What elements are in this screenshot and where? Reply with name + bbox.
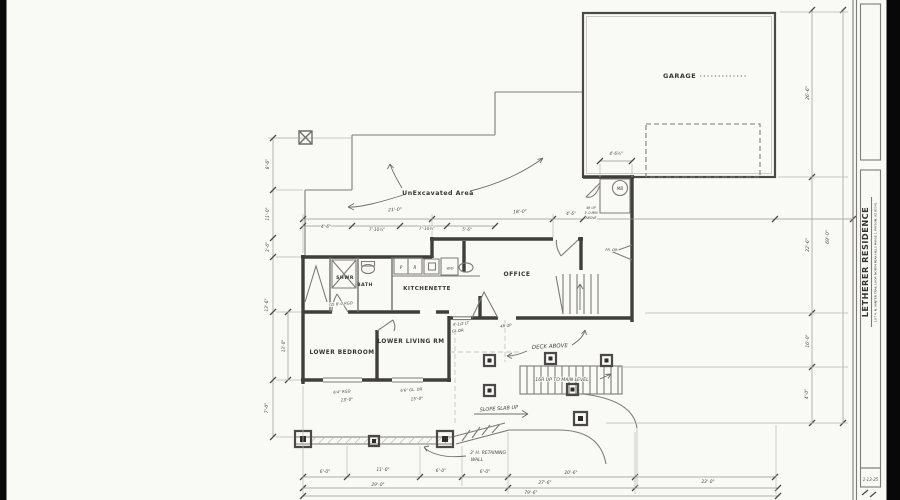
lower-living-label: LOWER LIVING RM xyxy=(377,339,444,345)
dim-top-21: 21'-0" xyxy=(388,207,402,214)
paper-background xyxy=(0,0,900,500)
dim-left-13-0: 13'-0" xyxy=(281,340,286,353)
sheet-date: 1-13-25 xyxy=(863,477,879,482)
stair-note: 16R UP TO MAIN LEVEL xyxy=(535,377,589,383)
dim-top-18: 18'-0" xyxy=(513,209,527,216)
kitchenette-label: KITCHENETTE xyxy=(403,286,451,292)
dim-bot-20-6: 20'-6" xyxy=(564,470,577,476)
hall-note-3: ABOVE xyxy=(584,216,596,220)
dim-left-11-0: 11'-0" xyxy=(265,207,271,220)
floorplan-drawing: GARAGE OFFICE KITCHENETTE BATH SHWR LOWE… xyxy=(0,0,900,500)
dim-closet-width: 4'-6½" xyxy=(609,151,623,156)
dim-bot-6b: 6'-0" xyxy=(436,468,446,474)
dim-bot-total: 79'-6" xyxy=(524,490,537,496)
dim-top-5-6: 5'-6" xyxy=(462,227,472,232)
dim-left-13-6: 13'-6" xyxy=(264,298,270,311)
dim-top-4-6b: 4'-6" xyxy=(566,211,576,216)
dim-left-7-0: 7'-0" xyxy=(264,403,270,413)
french-door-note: FR. DR. xyxy=(605,248,618,252)
hall-note-2: 3'-0 MIN xyxy=(584,211,598,215)
dim-bot-11: 11'-0" xyxy=(376,467,389,473)
living-width-dim: 15'-0" xyxy=(410,396,423,402)
mb-label: MB xyxy=(617,186,624,191)
dim-right-22-6: 22'-6" xyxy=(805,238,811,252)
dim-right-26-6: 26'-6" xyxy=(805,86,811,100)
office-label: OFFICE xyxy=(503,271,530,278)
project-title: LETHERER RESIDENCE xyxy=(860,207,870,318)
dim-left-3-6: 3'-6" xyxy=(265,242,270,252)
bedroom-width-dim: 13'-0" xyxy=(340,397,353,403)
dim-top-4-6a: 4'-6" xyxy=(321,224,331,229)
dim-right-4-0: 4'-0" xyxy=(804,389,809,399)
unexcavated-label: UnExcavated Area xyxy=(402,190,474,197)
dim-top-7-10b: 7'-10½" xyxy=(419,226,435,231)
dim-bot-6c: 6'-0" xyxy=(480,469,490,475)
dim-left-8-6: 8'-6" xyxy=(265,159,271,169)
retaining-note-2: WALL xyxy=(471,457,484,463)
dim-bot-27-6: 27'-6" xyxy=(538,480,551,486)
dim-bot-6a: 6'-0" xyxy=(320,469,330,475)
washer-dryer-label: W/D xyxy=(446,267,453,271)
dim-bot-23: 23'-0" xyxy=(701,479,714,485)
refrigerator-label: R xyxy=(414,265,417,270)
hall-note-1: 4R UP xyxy=(586,206,596,210)
dim-bot-29: 29'-0" xyxy=(371,482,384,488)
dim-right-total: 69'-0" xyxy=(825,230,831,244)
lower-bedroom-label: LOWER BEDROOM xyxy=(309,350,374,356)
dim-right-16-0: 16'-0" xyxy=(805,334,811,347)
project-address: LOT 4, N. WINTER TRAIL LOOP, NORTH PEAK … xyxy=(874,202,878,322)
retaining-note-1: 3' H. RETAINING xyxy=(470,450,507,456)
shower-label: SHWR xyxy=(336,275,354,281)
bath-label: BATH xyxy=(357,282,373,288)
garage-label: GARAGE xyxy=(663,72,696,80)
scan-black-bar-left xyxy=(0,0,7,500)
scanned-floorplan-sheet: GARAGE OFFICE KITCHENETTE BATH SHWR LOWE… xyxy=(0,0,900,500)
scan-black-bar-right xyxy=(887,0,900,500)
dim-top-7-10a: 7'-10½" xyxy=(369,227,385,232)
